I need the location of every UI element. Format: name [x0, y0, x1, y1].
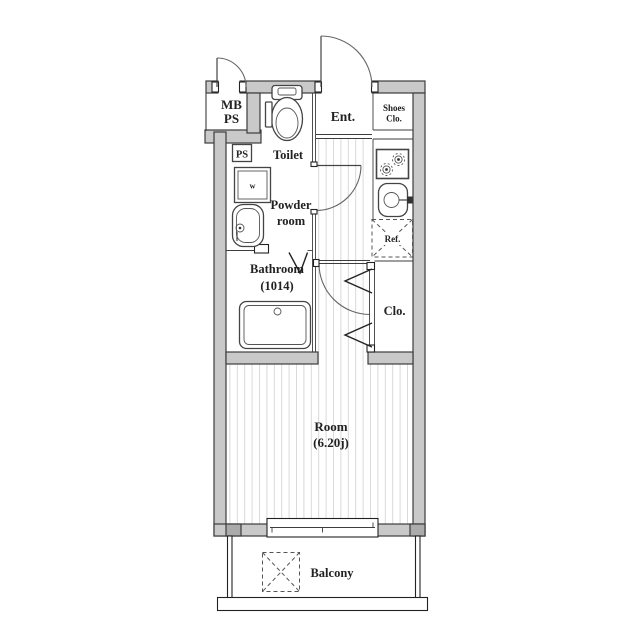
shoes-closet-label-line1: Shoes: [383, 103, 406, 113]
balcony-wall-right: [416, 536, 421, 598]
mbps-label-line2: PS: [224, 111, 239, 126]
bathroom-size-label: (1014): [260, 279, 293, 293]
bathtub-icon: [240, 302, 311, 349]
floorplan-drawing: w PS: [0, 0, 640, 640]
washer-label: w: [250, 182, 256, 191]
burner-dot: [385, 168, 388, 171]
mbps-label-line1: MB: [221, 97, 242, 112]
kitchen-sink-icon: [379, 184, 413, 217]
toilet-panel: [266, 102, 273, 127]
powder-door-post-bottom: [311, 210, 317, 215]
closet-label: Clo.: [384, 304, 406, 318]
refrigerator-icon: Ref.: [372, 220, 413, 258]
entrance-label: Ent.: [331, 109, 355, 124]
room-door-post: [314, 260, 320, 267]
stove-box: [377, 150, 409, 179]
hallway-floor: [317, 139, 371, 364]
powder-door-post-top: [311, 162, 317, 167]
corner-pillar-left: [226, 524, 241, 536]
right-wall: [413, 93, 425, 536]
bathroom-label-line1: Bathroom: [250, 262, 305, 276]
shoes-closet-label-line2: Clo.: [386, 114, 402, 124]
burner-dot: [397, 158, 400, 161]
floorplan-page: w PS: [0, 0, 640, 640]
toilet-label: Toilet: [273, 148, 304, 162]
toilet-icon: [266, 86, 303, 141]
washing-machine-icon: w: [235, 168, 271, 203]
washbasin-icon: [233, 205, 264, 247]
balcony-wall-left: [228, 536, 233, 598]
ps-label: PS: [236, 150, 248, 161]
toilet-left-wall: [247, 93, 260, 133]
window-icon: [267, 519, 378, 538]
closet-post-top: [367, 263, 375, 270]
room-size-label: (6.20j): [313, 435, 349, 450]
powder-room-label-line2: room: [277, 214, 306, 228]
mbps-doorway: [219, 80, 240, 94]
balcony-base: [218, 598, 428, 611]
bathroom-bottom-wall: [226, 352, 318, 364]
stove-icon: [377, 150, 409, 179]
mbps-door-post-right: [240, 82, 247, 92]
ref-label: Ref.: [385, 234, 401, 244]
room-label: Room: [314, 419, 347, 434]
entrance-doorway: [322, 80, 372, 94]
pipe-space: PS: [233, 145, 252, 162]
balcony-label: Balcony: [310, 566, 354, 580]
left-wall: [214, 132, 226, 536]
basin-faucet-dot: [239, 227, 242, 230]
sink-handle: [407, 197, 413, 204]
entrance-door-arc: [321, 36, 372, 87]
corner-pillar-right: [410, 524, 425, 536]
closet-bottom-wall: [368, 352, 413, 364]
powder-room-label-line1: Powder: [271, 198, 312, 212]
